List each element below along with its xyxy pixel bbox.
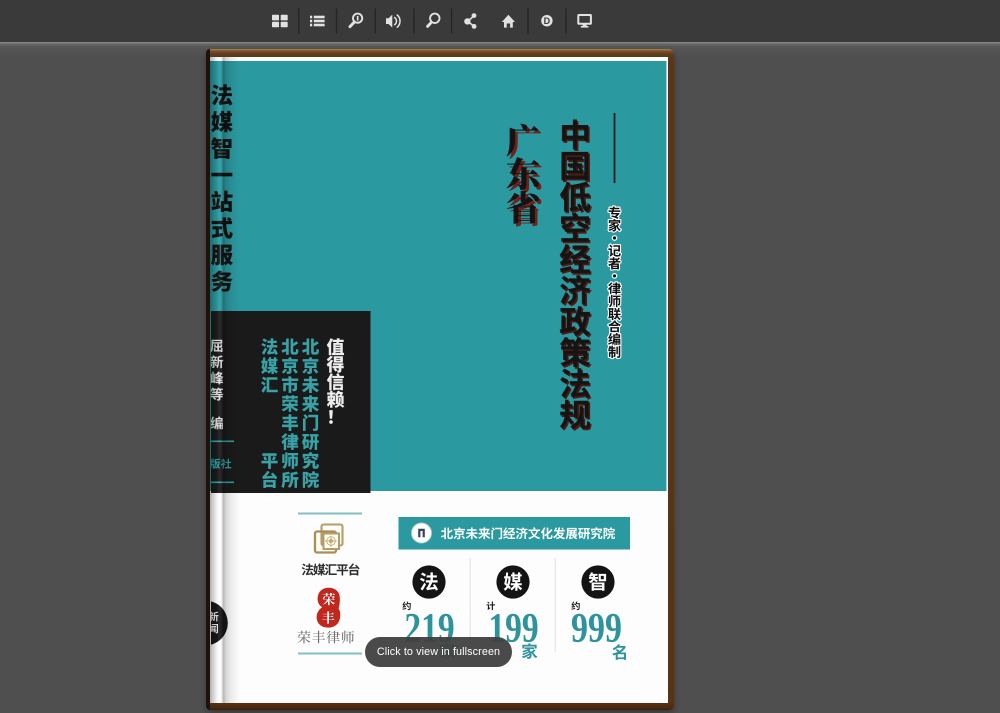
svg-text:999: 999	[571, 606, 622, 652]
svg-text:D: D	[544, 16, 551, 26]
